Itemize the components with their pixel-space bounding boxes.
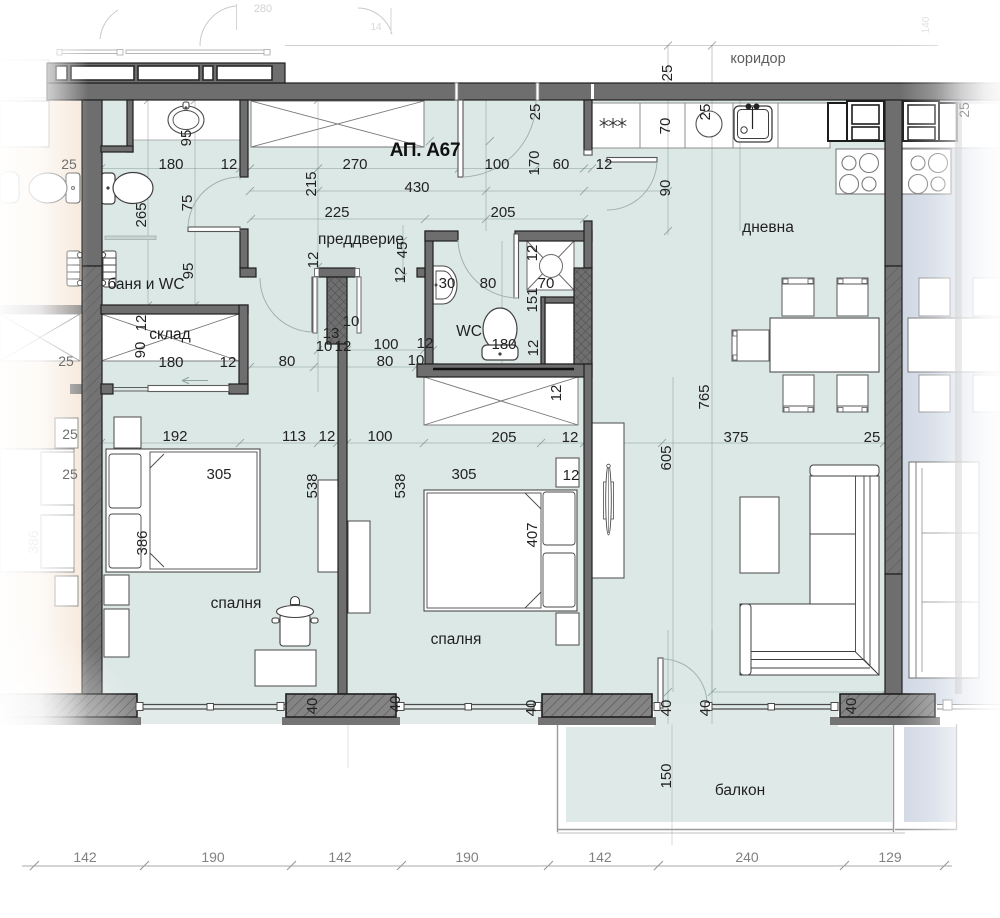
svg-text:12: 12 xyxy=(319,428,336,445)
svg-text:70: 70 xyxy=(657,118,674,135)
svg-text:142: 142 xyxy=(73,849,97,865)
svg-text:240: 240 xyxy=(735,849,759,865)
svg-text:180: 180 xyxy=(158,156,183,173)
svg-text:преддверие: преддверие xyxy=(318,231,404,248)
svg-text:538: 538 xyxy=(304,473,321,498)
svg-text:30: 30 xyxy=(439,275,456,292)
svg-text:95: 95 xyxy=(178,130,195,147)
svg-text:60: 60 xyxy=(553,156,570,173)
svg-text:25: 25 xyxy=(58,353,74,369)
svg-text:205: 205 xyxy=(490,204,515,221)
svg-text:142: 142 xyxy=(328,849,352,865)
svg-text:АП. А67: АП. А67 xyxy=(390,140,460,161)
svg-text:100: 100 xyxy=(367,428,392,445)
svg-text:40: 40 xyxy=(697,700,714,717)
svg-text:12: 12 xyxy=(524,245,541,262)
svg-text:386: 386 xyxy=(134,530,151,555)
svg-text:170: 170 xyxy=(526,150,543,175)
svg-text:12: 12 xyxy=(392,267,409,284)
svg-text:40: 40 xyxy=(523,700,540,717)
svg-text:12: 12 xyxy=(305,252,322,269)
svg-text:280: 280 xyxy=(254,3,272,15)
svg-text:40: 40 xyxy=(843,698,860,715)
svg-text:13: 13 xyxy=(323,325,340,342)
svg-text:25: 25 xyxy=(697,104,714,121)
svg-text:129: 129 xyxy=(878,849,902,865)
svg-text:12: 12 xyxy=(525,340,542,357)
svg-text:605: 605 xyxy=(658,445,675,470)
svg-text:215: 215 xyxy=(303,171,320,196)
svg-text:100: 100 xyxy=(484,156,509,173)
svg-text:10: 10 xyxy=(408,352,425,369)
svg-text:12: 12 xyxy=(548,385,565,402)
svg-text:14: 14 xyxy=(370,22,382,33)
svg-text:375: 375 xyxy=(723,429,748,446)
svg-text:баня и WC: баня и WC xyxy=(107,276,184,293)
svg-text:25: 25 xyxy=(659,65,676,82)
svg-text:305: 305 xyxy=(206,466,231,483)
svg-text:190: 190 xyxy=(455,849,479,865)
svg-text:265: 265 xyxy=(133,202,150,227)
svg-text:12: 12 xyxy=(133,315,150,332)
svg-text:12: 12 xyxy=(220,354,237,371)
svg-text:225: 225 xyxy=(324,204,349,221)
svg-text:WC: WC xyxy=(456,323,482,340)
svg-text:150: 150 xyxy=(658,763,675,788)
svg-text:151: 151 xyxy=(524,287,541,312)
svg-text:538: 538 xyxy=(392,473,409,498)
svg-text:дневна: дневна xyxy=(742,219,794,236)
svg-text:407: 407 xyxy=(524,522,541,547)
svg-text:80: 80 xyxy=(377,353,394,370)
svg-text:113: 113 xyxy=(282,428,306,445)
svg-text:90: 90 xyxy=(657,180,674,197)
svg-text:190: 190 xyxy=(201,849,225,865)
svg-text:430: 430 xyxy=(404,179,429,196)
svg-text:40: 40 xyxy=(387,696,404,713)
svg-text:80: 80 xyxy=(279,353,296,370)
svg-text:25: 25 xyxy=(956,102,972,118)
svg-text:склад: склад xyxy=(149,326,190,343)
svg-text:270: 270 xyxy=(342,156,367,173)
svg-text:12: 12 xyxy=(596,156,613,173)
svg-text:205: 205 xyxy=(491,429,516,446)
svg-text:142: 142 xyxy=(588,849,612,865)
svg-text:25: 25 xyxy=(62,426,78,442)
svg-text:12: 12 xyxy=(221,156,238,173)
svg-text:12: 12 xyxy=(417,335,434,352)
svg-text:75: 75 xyxy=(179,195,196,212)
svg-text:80: 80 xyxy=(480,275,497,292)
svg-text:балкон: балкон xyxy=(715,782,765,799)
svg-text:12: 12 xyxy=(563,467,580,484)
svg-text:спалня: спалня xyxy=(211,595,262,612)
svg-text:180: 180 xyxy=(158,354,183,371)
svg-text:10: 10 xyxy=(343,313,360,330)
svg-text:305: 305 xyxy=(451,466,476,483)
svg-text:765: 765 xyxy=(696,384,713,409)
svg-text:25: 25 xyxy=(864,429,881,446)
svg-text:40: 40 xyxy=(658,700,675,717)
svg-text:100: 100 xyxy=(373,336,398,353)
svg-text:коридор: коридор xyxy=(730,51,785,67)
svg-text:40: 40 xyxy=(304,698,321,715)
svg-text:192: 192 xyxy=(162,428,187,445)
svg-text:25: 25 xyxy=(62,466,78,482)
svg-text:12: 12 xyxy=(562,429,579,446)
svg-text:180: 180 xyxy=(491,336,516,353)
svg-text:25: 25 xyxy=(61,156,77,172)
svg-text:спалня: спалня xyxy=(431,631,482,648)
svg-text:90: 90 xyxy=(132,342,149,359)
svg-text:25: 25 xyxy=(527,104,544,121)
